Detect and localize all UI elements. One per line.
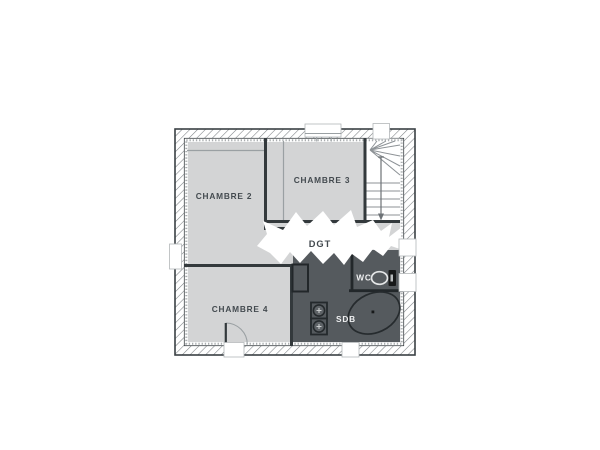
window-left (170, 244, 182, 269)
wall-pier (293, 265, 309, 292)
dgt-label: DGT (309, 239, 332, 249)
door-opening-bottom (224, 343, 244, 358)
window-bottom (342, 343, 359, 358)
bathtub-drain (372, 311, 375, 314)
window-top-small (373, 124, 390, 140)
chambre-2-label: CHAMBRE 2 (196, 191, 253, 201)
window-right-upper (399, 239, 416, 256)
chambre-4-label: CHAMBRE 4 (212, 304, 269, 314)
toilet-flush-button (391, 275, 394, 282)
floor-plan-drawing: CHAMBRE 2 CHAMBRE 3 CHAMBRE 4 DGT WC SDB (0, 0, 600, 450)
sdb-label: SDB (336, 314, 356, 324)
floor-plan: CHAMBRE 2 CHAMBRE 3 CHAMBRE 4 DGT WC SDB (0, 0, 600, 450)
window-top-large (305, 124, 341, 137)
chambre-3-label: CHAMBRE 3 (294, 175, 351, 185)
wc-label: WC (356, 273, 371, 283)
double-sink-icon (311, 303, 327, 335)
room-sdb-wc-floor (293, 250, 403, 346)
window-right-lower (399, 274, 416, 292)
